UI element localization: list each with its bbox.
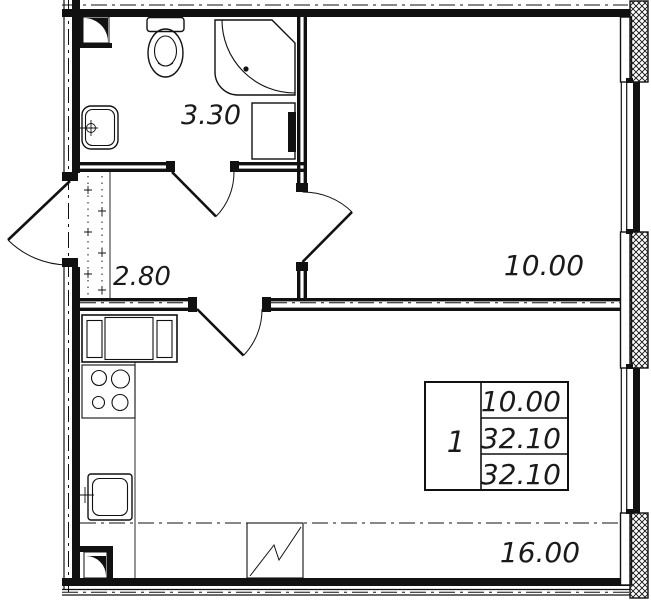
floor-plan-canvas: 3.30 2.80 10.00 16.00 1 10.00 32.10 32.1…	[0, 0, 651, 600]
bathroom-door-leaf	[172, 172, 216, 217]
radiator-zigzag	[250, 527, 301, 576]
top-wall	[62, 9, 630, 17]
closet-cross-marks	[84, 186, 106, 294]
bathroom-fixtures	[78, 17, 296, 159]
toilet-symbol	[147, 18, 184, 78]
bathroom-south-wall	[237, 169, 307, 172]
vent-shaft-border	[78, 43, 112, 48]
stove-burner	[112, 370, 130, 388]
stamp-rooms-count: 1	[447, 425, 465, 459]
stove-burner	[92, 371, 107, 386]
door-jamb	[296, 262, 308, 271]
kitchen-door-swing-arc	[244, 309, 263, 356]
room-divider-wall	[271, 308, 621, 311]
shower-curve	[222, 20, 295, 93]
door-jamb	[262, 297, 271, 312]
sink-unit-outer	[82, 315, 177, 362]
vent-shaft-border	[107, 546, 113, 584]
vent-shaft-symbol-bathroom	[78, 17, 112, 48]
window-tick-2	[626, 229, 633, 234]
bathroom-south-wall	[80, 162, 168, 165]
area-label-bathroom: 3.30	[181, 100, 241, 131]
stamp-row-value: 32.10	[481, 422, 561, 455]
facade-right	[621, 1, 649, 598]
bathroom-east-wall	[304, 17, 307, 183]
stamp-row-value: 32.10	[481, 458, 561, 491]
masonry-pier-middle	[630, 232, 648, 368]
bathroom-door-swing-arc	[216, 172, 234, 217]
room-door-swing-arc	[303, 192, 353, 212]
bathroom-east-wall	[297, 271, 300, 298]
bathroom-south-wall	[237, 162, 307, 165]
water-heater-symbol	[252, 103, 296, 159]
bathroom-east-wall	[297, 17, 300, 183]
kitchen-sink-inner	[93, 479, 128, 516]
entrance-door-swing-arc	[8, 240, 68, 265]
closet-zone	[84, 172, 110, 298]
window-room-frame	[633, 82, 640, 232]
bottom-wall	[62, 578, 630, 586]
kitchen-sink-unit-symbol	[82, 315, 177, 362]
floor-plan-drawing: 3.30 2.80 10.00 16.00 1 10.00 32.10 32.1…	[0, 0, 651, 600]
entrance-door-leaf	[8, 181, 70, 240]
window-tick-4	[626, 509, 633, 514]
exterior-walls	[62, 0, 630, 595]
window-tick-1	[626, 78, 633, 83]
stove-burner	[112, 395, 128, 411]
shower-tray	[215, 20, 295, 95]
area-label-kitchen-living: 16.00	[500, 536, 580, 569]
kitchen-door-leaf	[197, 309, 244, 356]
water-heater-bar	[288, 112, 296, 152]
masonry-pier-bottom	[630, 513, 648, 598]
area-stamp-table: 1 10.00 32.10 32.10	[425, 382, 568, 491]
stamp-row-value: 10.00	[481, 385, 561, 418]
hallway-south-wall	[80, 308, 188, 311]
washbasin-inner	[86, 110, 115, 146]
shower-drain	[243, 66, 248, 71]
hallway-south-wall	[80, 298, 188, 301]
door-jamb	[296, 183, 308, 192]
washbasin-symbol	[79, 106, 118, 149]
stove-burner	[93, 397, 105, 409]
door-jamb	[62, 258, 78, 267]
room-door-leaf	[303, 212, 353, 262]
window-living-frame	[633, 368, 640, 513]
left-wall-lower	[72, 267, 80, 578]
stove-symbol	[82, 365, 135, 418]
door-jamb	[188, 297, 197, 312]
shower-symbol	[215, 20, 295, 95]
area-label-room: 10.00	[504, 249, 584, 282]
room-divider-wall	[271, 298, 621, 301]
door-jamb	[62, 172, 78, 181]
radiator-symbol	[247, 523, 303, 578]
toilet-detail	[158, 63, 173, 66]
bathroom-south-wall	[80, 169, 168, 172]
bathroom-east-wall	[304, 271, 307, 298]
window-tick-3	[626, 364, 633, 369]
masonry-pier-top	[630, 1, 648, 82]
area-labels: 3.30 2.80 10.00 16.00	[113, 100, 584, 569]
area-label-hallway: 2.80	[113, 262, 171, 292]
toilet-bowl-inner	[155, 36, 177, 66]
door-jamb	[166, 161, 175, 172]
kitchen-sink-symbol	[76, 474, 132, 520]
